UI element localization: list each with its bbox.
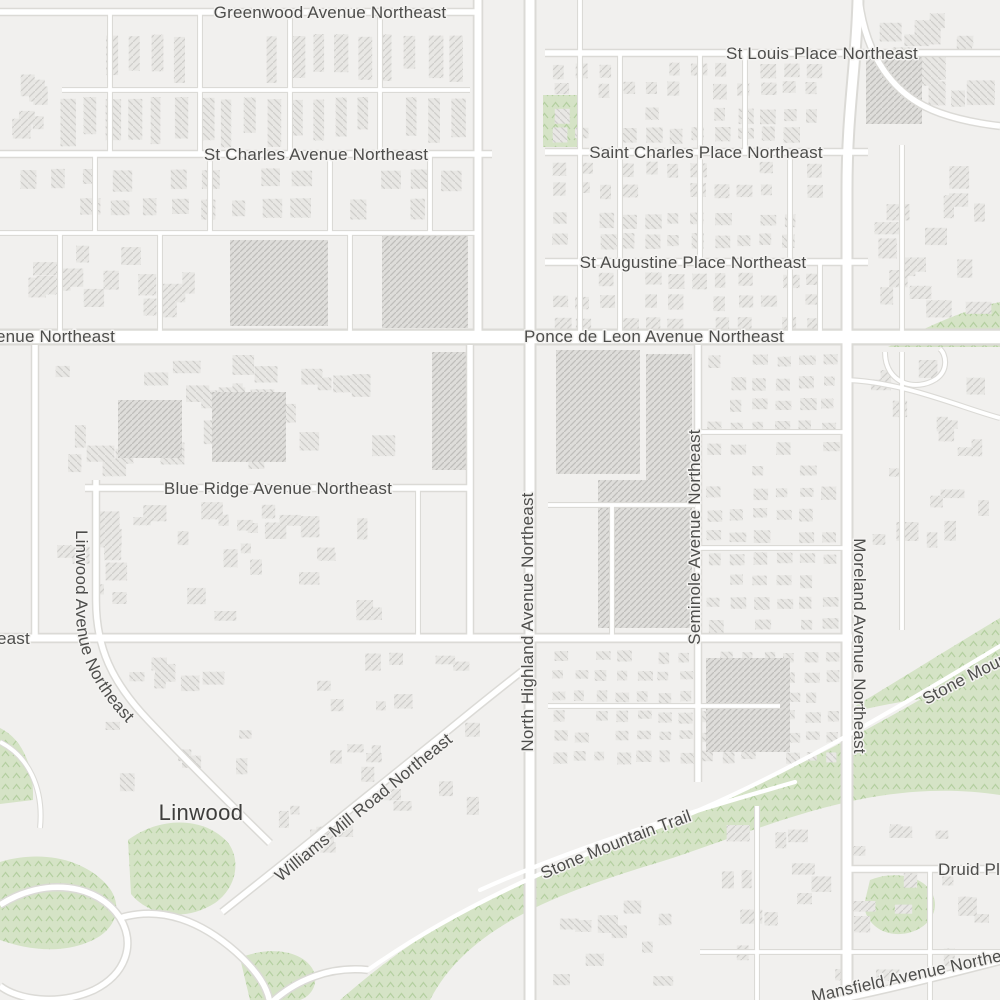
building <box>715 63 726 77</box>
building <box>761 83 776 95</box>
building <box>203 672 225 685</box>
building <box>799 356 816 365</box>
building <box>128 99 142 140</box>
building <box>783 81 796 93</box>
building <box>595 670 607 681</box>
building <box>638 711 652 719</box>
building <box>806 732 820 740</box>
building <box>887 204 910 220</box>
building <box>361 767 374 782</box>
building <box>586 954 604 966</box>
building <box>805 294 818 304</box>
building <box>313 100 324 141</box>
building <box>300 432 320 450</box>
building <box>706 486 720 497</box>
building <box>552 234 568 245</box>
building <box>622 185 638 198</box>
building <box>555 651 569 661</box>
building <box>118 400 182 458</box>
building <box>714 108 725 121</box>
building <box>667 164 678 178</box>
building <box>596 651 610 660</box>
street-label-partial-avenue: enue Northeast <box>0 327 115 346</box>
building <box>949 166 969 189</box>
building <box>255 366 278 382</box>
building <box>155 664 175 682</box>
building <box>553 212 567 223</box>
building <box>76 246 89 263</box>
building <box>824 354 838 364</box>
building <box>762 127 775 141</box>
building <box>280 515 302 526</box>
building <box>301 516 320 537</box>
building <box>645 273 661 285</box>
building <box>680 671 693 679</box>
building <box>681 753 695 764</box>
building <box>599 273 614 286</box>
building <box>880 23 902 42</box>
building <box>799 597 811 609</box>
building <box>645 235 660 249</box>
building <box>799 532 814 543</box>
building <box>659 693 671 703</box>
building <box>895 905 912 914</box>
building <box>708 510 723 521</box>
building <box>61 99 76 147</box>
building <box>800 466 817 476</box>
building <box>669 63 679 76</box>
building <box>752 378 765 391</box>
building <box>624 901 642 914</box>
building <box>707 530 722 540</box>
building <box>777 575 792 585</box>
building <box>596 711 608 721</box>
building <box>680 730 693 738</box>
building <box>56 366 70 377</box>
building <box>737 185 753 197</box>
street-label-blue-ridge-avenue: Blue Ridge Avenue Northeast <box>164 479 392 498</box>
building <box>646 82 657 94</box>
building <box>239 730 252 738</box>
building <box>33 87 47 105</box>
building <box>212 392 286 462</box>
building <box>742 870 752 888</box>
building <box>453 662 469 671</box>
building <box>910 286 932 299</box>
street-label-st-augustine-place: St Augustine Place Northeast <box>580 253 807 272</box>
building <box>382 234 468 328</box>
neighborhood-label-linwood: Linwood <box>159 800 244 825</box>
building <box>617 650 632 661</box>
building <box>555 730 568 740</box>
building <box>120 773 135 791</box>
building <box>754 489 769 500</box>
building <box>151 97 161 144</box>
building <box>556 350 640 474</box>
building <box>268 99 282 147</box>
building <box>432 352 466 470</box>
building <box>823 597 839 607</box>
building <box>707 598 720 607</box>
building <box>129 672 144 681</box>
building <box>800 575 812 588</box>
building <box>715 184 730 198</box>
building <box>800 488 813 497</box>
building <box>765 912 778 925</box>
street-label-partial-east: east <box>0 629 30 648</box>
building <box>957 259 972 277</box>
building <box>826 652 840 661</box>
building <box>731 597 747 609</box>
building <box>600 213 615 228</box>
building <box>358 97 369 129</box>
building <box>163 284 186 303</box>
building <box>776 401 792 410</box>
building <box>51 169 64 188</box>
building <box>822 532 836 542</box>
building <box>776 442 790 455</box>
building <box>230 240 328 326</box>
building <box>290 198 311 217</box>
building <box>357 518 367 539</box>
building <box>33 116 44 129</box>
building <box>232 201 245 217</box>
building <box>236 758 247 774</box>
building <box>178 531 189 545</box>
building <box>111 200 130 215</box>
building <box>106 563 128 581</box>
building <box>33 262 58 275</box>
building <box>290 806 299 815</box>
building <box>129 36 140 70</box>
building <box>600 65 612 78</box>
building <box>75 425 86 447</box>
building <box>365 654 381 671</box>
building <box>645 108 658 120</box>
building <box>823 442 840 451</box>
building <box>792 863 815 874</box>
building <box>732 377 747 390</box>
building <box>708 355 720 368</box>
building <box>152 35 164 72</box>
street-label-ponce-de-leon: Ponce de Leon Avenue Northeast <box>524 327 784 346</box>
building <box>776 488 787 497</box>
building <box>600 185 611 199</box>
building <box>807 64 822 78</box>
building <box>930 13 945 28</box>
building <box>777 553 793 564</box>
building <box>805 673 820 683</box>
building <box>552 670 563 678</box>
building <box>554 710 565 721</box>
building <box>84 289 104 307</box>
building <box>755 620 771 630</box>
building <box>555 109 570 124</box>
building <box>889 826 912 838</box>
building <box>624 82 636 94</box>
building <box>612 925 627 938</box>
building <box>709 553 721 565</box>
building <box>853 901 875 912</box>
building <box>617 671 627 681</box>
building <box>730 575 743 585</box>
building <box>553 752 567 763</box>
building <box>680 691 691 701</box>
building <box>975 914 990 923</box>
building <box>574 690 584 701</box>
building <box>754 530 771 543</box>
building <box>12 119 25 135</box>
building <box>739 295 753 307</box>
building <box>394 694 413 708</box>
building <box>660 750 670 762</box>
building <box>759 233 771 245</box>
building <box>330 750 342 763</box>
building <box>436 656 456 665</box>
street-label-north-highland-avenue: North Highland Avenue Northeast <box>518 492 537 751</box>
building <box>951 91 965 107</box>
building <box>621 163 634 177</box>
building <box>143 505 166 521</box>
building <box>317 681 331 691</box>
building <box>799 376 814 388</box>
building <box>944 195 954 218</box>
building <box>658 713 671 723</box>
street-label-st-louis-place: St Louis Place Northeast <box>726 44 918 63</box>
building <box>411 199 425 220</box>
building <box>737 235 750 246</box>
building <box>730 509 743 520</box>
building <box>854 916 870 932</box>
building <box>760 162 773 173</box>
building <box>553 163 567 176</box>
building <box>936 831 949 839</box>
building <box>172 199 189 214</box>
building <box>730 533 747 543</box>
building <box>754 597 769 610</box>
building <box>741 751 756 759</box>
building <box>262 505 275 519</box>
building <box>394 801 412 811</box>
building <box>784 109 797 121</box>
building <box>331 699 344 711</box>
building <box>788 830 808 843</box>
building <box>659 653 670 665</box>
building <box>707 444 721 455</box>
building <box>215 611 237 621</box>
building <box>873 534 886 545</box>
building <box>761 296 777 307</box>
building <box>181 676 200 692</box>
building <box>621 233 634 248</box>
building <box>574 751 586 761</box>
building <box>967 80 995 105</box>
building <box>776 379 790 391</box>
building <box>715 273 725 288</box>
building <box>103 459 127 476</box>
building <box>372 435 395 456</box>
building <box>659 914 672 926</box>
building <box>778 357 791 367</box>
building <box>805 652 819 662</box>
building <box>967 378 986 395</box>
building <box>555 83 570 94</box>
building <box>966 302 992 314</box>
building <box>638 671 653 681</box>
building <box>653 976 673 986</box>
street-label-moreland-avenue: Moreland Avenue Northeast <box>850 538 869 754</box>
building <box>363 608 382 620</box>
building <box>731 445 747 455</box>
building <box>715 213 732 225</box>
building <box>237 520 253 531</box>
building <box>801 620 812 630</box>
building <box>806 109 817 122</box>
building <box>812 876 832 892</box>
building <box>752 398 767 409</box>
building <box>878 238 896 258</box>
building <box>175 97 188 139</box>
building <box>121 247 141 265</box>
building <box>752 466 763 475</box>
building <box>753 508 767 518</box>
building <box>317 548 335 560</box>
building <box>138 274 156 295</box>
building <box>372 745 381 756</box>
building <box>678 653 689 663</box>
building <box>777 599 793 609</box>
building <box>100 529 122 548</box>
building <box>224 549 238 567</box>
building <box>599 84 610 98</box>
building <box>730 554 745 565</box>
building <box>723 752 735 763</box>
building <box>960 897 970 906</box>
building <box>428 98 440 143</box>
street-label-st-charles-avenue: St Charles Avenue Northeast <box>204 145 428 164</box>
building <box>806 82 817 94</box>
building <box>958 36 974 47</box>
building <box>821 399 833 409</box>
building <box>465 723 480 737</box>
building <box>441 171 462 192</box>
building <box>21 170 37 189</box>
building <box>889 468 900 476</box>
building <box>668 294 683 309</box>
building <box>824 377 835 386</box>
building <box>642 942 653 953</box>
building <box>713 296 725 311</box>
building <box>404 36 416 69</box>
building <box>799 509 813 522</box>
building <box>760 64 776 78</box>
building <box>600 295 615 308</box>
building <box>800 553 815 563</box>
building <box>250 560 262 575</box>
building <box>389 653 403 665</box>
map-viewport[interactable]: Greenwood Avenue Northeast St Louis Plac… <box>0 0 1000 1000</box>
building <box>806 693 816 703</box>
building <box>187 588 205 604</box>
building <box>727 825 750 841</box>
building <box>429 36 444 79</box>
building <box>615 693 629 703</box>
building <box>926 300 952 317</box>
building <box>261 168 280 186</box>
building <box>221 100 231 148</box>
building <box>636 751 651 762</box>
building <box>775 832 786 848</box>
building <box>381 171 401 189</box>
building <box>279 811 289 828</box>
building <box>806 712 821 722</box>
street-label-saint-charles-place: Saint Charles Place Northeast <box>589 143 823 162</box>
building <box>406 97 417 136</box>
building <box>553 296 568 307</box>
building <box>761 185 772 196</box>
building <box>28 278 46 298</box>
building <box>352 374 371 397</box>
building <box>621 215 637 229</box>
building <box>784 127 801 143</box>
building <box>667 82 679 96</box>
building <box>821 487 836 500</box>
building <box>553 65 564 79</box>
building <box>807 164 822 178</box>
building <box>827 670 840 682</box>
building <box>233 355 255 375</box>
street-label-druid-place: Druid Pl <box>938 860 1000 879</box>
building <box>336 98 347 137</box>
building <box>657 672 668 681</box>
building <box>233 383 243 392</box>
building <box>739 273 753 286</box>
building <box>576 670 589 679</box>
building <box>875 222 900 234</box>
building <box>104 271 119 290</box>
building <box>616 711 628 722</box>
building <box>617 753 631 765</box>
building <box>937 417 948 432</box>
building <box>692 274 707 290</box>
building <box>800 398 816 410</box>
building <box>667 235 679 246</box>
building <box>974 204 985 222</box>
building <box>645 214 661 229</box>
building <box>777 510 792 520</box>
building <box>350 200 366 220</box>
map-canvas[interactable]: Greenwood Avenue Northeast St Louis Plac… <box>0 0 1000 1000</box>
building <box>106 722 120 730</box>
building <box>713 84 727 100</box>
building <box>715 236 730 249</box>
building <box>722 871 734 888</box>
building <box>314 34 325 72</box>
building <box>174 37 185 83</box>
building <box>575 733 589 743</box>
building <box>637 691 648 701</box>
building <box>173 361 201 373</box>
building <box>299 572 319 584</box>
building <box>263 199 283 218</box>
building <box>334 34 348 72</box>
street-label-seminole-avenue: Seminole Avenue Northeast <box>685 429 704 645</box>
building <box>806 274 817 285</box>
building <box>201 502 223 519</box>
building <box>866 56 922 124</box>
building <box>904 872 917 888</box>
building <box>824 555 837 564</box>
